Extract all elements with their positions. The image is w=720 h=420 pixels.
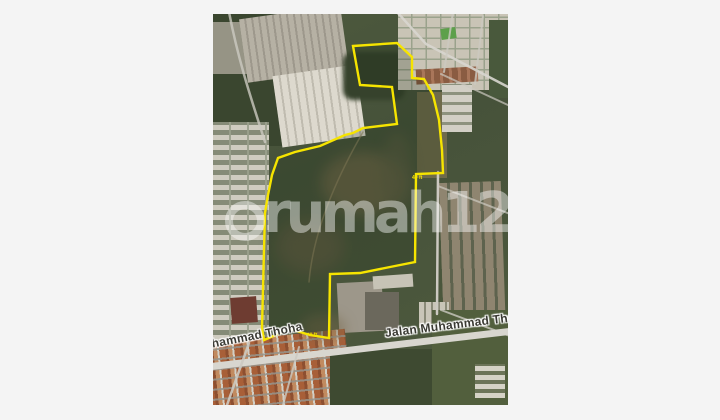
road <box>397 14 508 88</box>
watermark-ring-icon <box>225 201 265 241</box>
road <box>229 14 265 142</box>
measurement-label: 40 ft <box>307 333 318 339</box>
watermark-text: rumah123 <box>263 186 508 242</box>
road <box>444 14 453 72</box>
satellite-map-photo[interactable]: rumah123 Jalan Muhammad Thoha Jalan Muha… <box>213 14 508 405</box>
road <box>227 343 249 405</box>
measurement-label: 40 ft <box>412 176 422 181</box>
road <box>441 74 508 106</box>
listing-photo-page: rumah123 Jalan Muhammad Thoha Jalan Muha… <box>0 0 720 420</box>
